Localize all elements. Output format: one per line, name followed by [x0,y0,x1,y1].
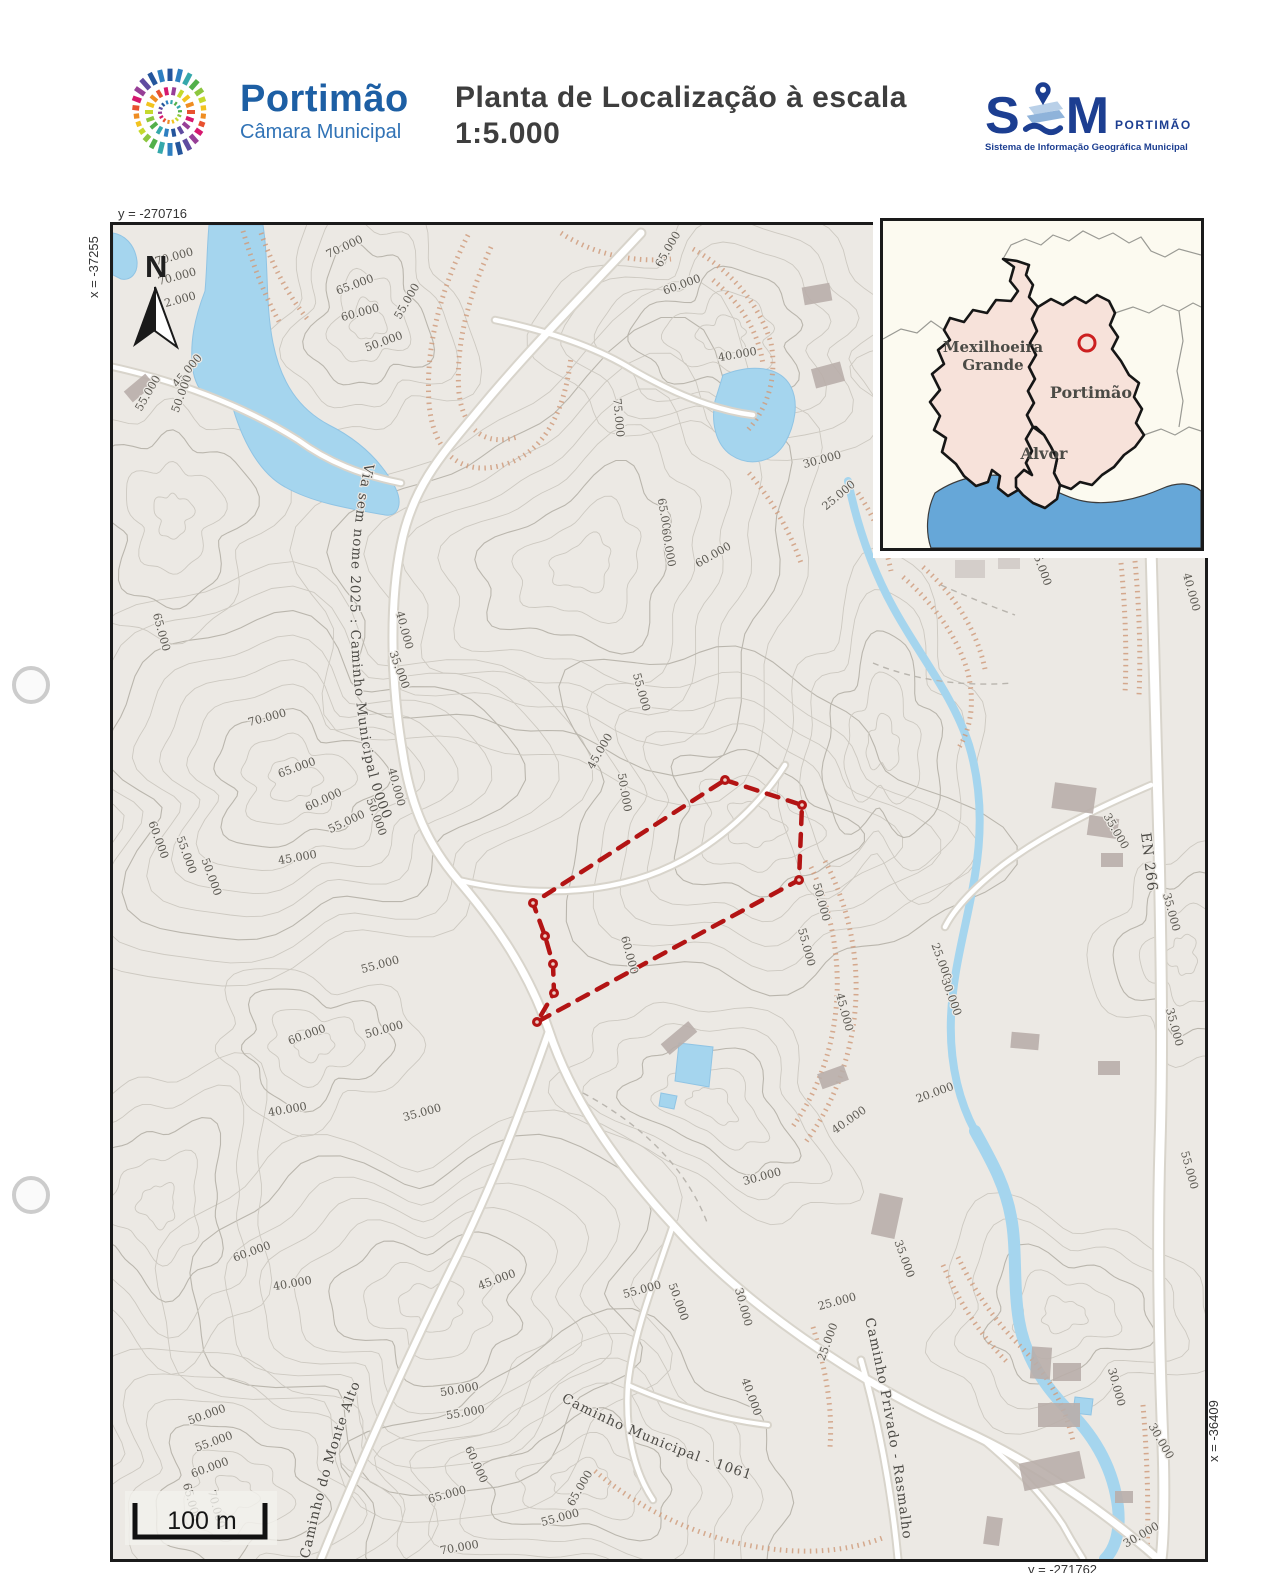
punch-hole-bottom [12,1176,50,1214]
elevation-label: 40.000 [717,345,758,365]
brand-name: Portimão [240,80,409,118]
elevation-label: 50.000 [665,1281,691,1322]
elevation-label: 55.000 [360,953,401,976]
frame-coordinate-top-y: y = -270716 [118,206,187,221]
road-name-label: Caminho Municipal - 1061 [559,1390,754,1483]
elevation-label: 45.000 [833,992,856,1033]
elevation-label: 60.000 [340,301,381,324]
elevation-label: 65.000 [150,612,173,653]
elevation-label: 50.000 [439,1380,480,1400]
elevation-label: 65.000 [334,272,375,298]
elevation-label: 50.000 [198,856,224,897]
elevation-label: 35.000 [402,1101,443,1124]
elevation-label: 60.000 [618,935,641,976]
building [871,1193,903,1239]
elevation-label: 45.000 [585,731,616,771]
elevation-label: 30.000 [742,1165,783,1188]
building [1098,1061,1120,1075]
punch-hole-top [12,666,50,704]
frame-coordinate-right-x: x = -36409 [1206,1400,1221,1462]
elevation-label: 2.000 [163,289,197,310]
frame-coordinate-left-x: x = -37255 [86,236,101,298]
scale-bar: 100 m [125,1491,277,1545]
inset-label-mexilhoeira: Mexilhoeira [943,338,1044,356]
page-title-line1: Planta de Localização à escala [455,80,907,116]
subject-parcel-boundary [528,775,807,1027]
building [817,1065,849,1090]
elevation-label: 55.000 [392,281,423,321]
elevation-label: 60.000 [659,527,679,568]
elevation-label: 40.000 [1180,572,1203,613]
elevation-label: 40.000 [829,1104,869,1137]
elevation-label: 20.000 [914,1080,955,1106]
page-title-scale: 1:5.000 [455,116,907,152]
brand-subtitle: Câmara Municipal [240,121,409,144]
portimao-municipality-logo [106,56,232,168]
elevation-label: 45.000 [476,1267,517,1293]
scale-bar-label: 100 m [167,1507,236,1535]
building [1051,782,1096,814]
elevation-label: 55.000 [630,672,653,713]
building [1019,1451,1085,1491]
elevation-label: 60.000 [189,1455,230,1481]
elevation-label: 40.000 [267,1100,308,1120]
elevation-label: 55.000 [326,808,367,836]
elevation-label: 60.000 [231,1239,272,1265]
elevation-label: 45.000 [277,848,318,868]
elevation-label: 35.000 [891,1238,917,1279]
map-pin-layers-icon [1021,80,1065,138]
elevation-label: 65.000 [427,1483,468,1506]
inset-label-alvor: Alvor [1020,444,1068,463]
elevation-label: 65.000 [565,1468,596,1508]
lake-corner [113,233,137,279]
elevation-label: 55.000 [1178,1150,1201,1191]
building [1115,1491,1133,1503]
building [983,1516,1003,1546]
municipality-inset-map: Mexilhoeira Grande Portimão Alvor [880,218,1204,551]
elevation-label: 65.000 [653,229,684,269]
sim-letter-m: M [1066,94,1109,138]
elevation-label: 30.000 [802,448,843,471]
elevation-label: 55.000 [173,834,199,875]
location-plan-page: Portimão Câmara Municipal Planta de Loca… [0,0,1280,1573]
elevation-label: 50.000 [810,882,833,923]
elevation-label: 65.000 [276,755,317,781]
elevation-label: 70.000 [324,233,365,261]
elevation-label: 60.000 [145,819,171,860]
municipality-brand: Portimão Câmara Municipal [240,80,409,144]
building [1030,1346,1052,1379]
frame-coordinate-bottom-y: y = -271762 [1028,1562,1097,1573]
elevation-label: 50.000 [364,1018,405,1041]
pond-small [675,1043,713,1087]
elevation-label: 60.000 [303,786,344,814]
building [1010,1032,1039,1050]
pond-tiny [659,1093,677,1109]
elevation-label: 25.000 [817,1290,858,1313]
elevation-label: 60.000 [286,1022,327,1048]
elevation-label: 70.000 [247,706,288,729]
building [1053,1363,1081,1381]
trail-layer [583,585,1015,1225]
sim-gis-logo: S M PORTIMÃO Sistema de Informação Geogr… [985,80,1203,153]
sim-subtitle: Sistema de Informação Geográfica Municip… [985,142,1203,153]
building [998,557,1020,569]
elevation-label: 60.000 [693,540,733,571]
building [955,560,985,578]
inset-label-grande: Grande [962,356,1023,374]
elevation-label: 60.000 [462,1444,490,1485]
north-needle-dark-half [133,287,155,347]
stream-upper [848,481,980,1131]
elevation-label: 40.000 [272,1274,313,1294]
sim-letter-s: S [985,94,1020,138]
stream-lower [975,1131,1119,1559]
elevation-label: 50.000 [615,772,635,813]
elevation-label: 40.000 [738,1376,764,1417]
elevation-label: 30.000 [1105,1367,1128,1408]
page-title: Planta de Localização à escala 1:5.000 [455,80,907,152]
elevation-label: 50.000 [186,1402,227,1428]
building [1038,1403,1080,1427]
elevation-label: 30.000 [938,976,964,1017]
elevation-label: 55.000 [445,1403,486,1423]
sim-brand-label: PORTIMÃO [1115,118,1192,132]
elevation-label: 55.000 [622,1278,663,1301]
inset-label-portimao: Portimão [1050,383,1132,402]
north-letter: N [145,249,167,284]
elevation-label: 60.000 [661,272,702,298]
building [802,283,833,306]
building [1101,853,1123,867]
